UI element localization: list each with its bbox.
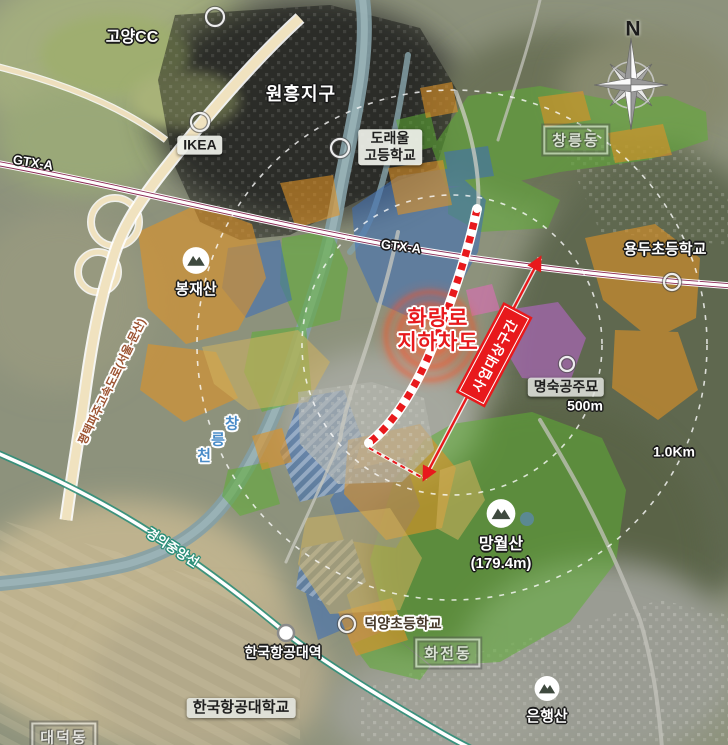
district-changneung-dong: 창릉동 xyxy=(543,126,608,155)
mountain-icon xyxy=(182,247,210,275)
map-base-svg xyxy=(0,0,728,745)
mountain-icon xyxy=(486,499,516,529)
mountain-icon xyxy=(534,676,560,702)
badge-doraeul-line2: 고등학교 xyxy=(364,147,416,164)
district-hwajeon-dong: 화전동 xyxy=(415,639,480,668)
badge-myeongsuk-tomb: 명숙공주묘 xyxy=(528,378,604,397)
district-daedeok-dong: 대덕동 xyxy=(31,723,96,745)
label-stream-char3: 천 xyxy=(197,445,211,466)
satellite-map: 고양CC 원흥지구 IKEA 도래울 고등학교 창릉동 N GTX-A GTX-… xyxy=(0,0,728,745)
badge-doraeul-school: 도래울 고등학교 xyxy=(358,129,422,165)
label-stream-char2: 릉 xyxy=(211,429,225,450)
bongjae-mountain-icon xyxy=(182,247,210,280)
badge-ikea: IKEA xyxy=(177,136,222,155)
eunhaeng-mountain-icon xyxy=(534,676,560,707)
badge-kau-university: 한국항공대학교 xyxy=(187,698,296,718)
badge-doraeul-line1: 도래울 xyxy=(364,130,416,147)
mangwol-mountain-icon xyxy=(486,499,516,534)
station-marker xyxy=(278,625,294,641)
label-stream-char1: 창 xyxy=(225,413,239,434)
